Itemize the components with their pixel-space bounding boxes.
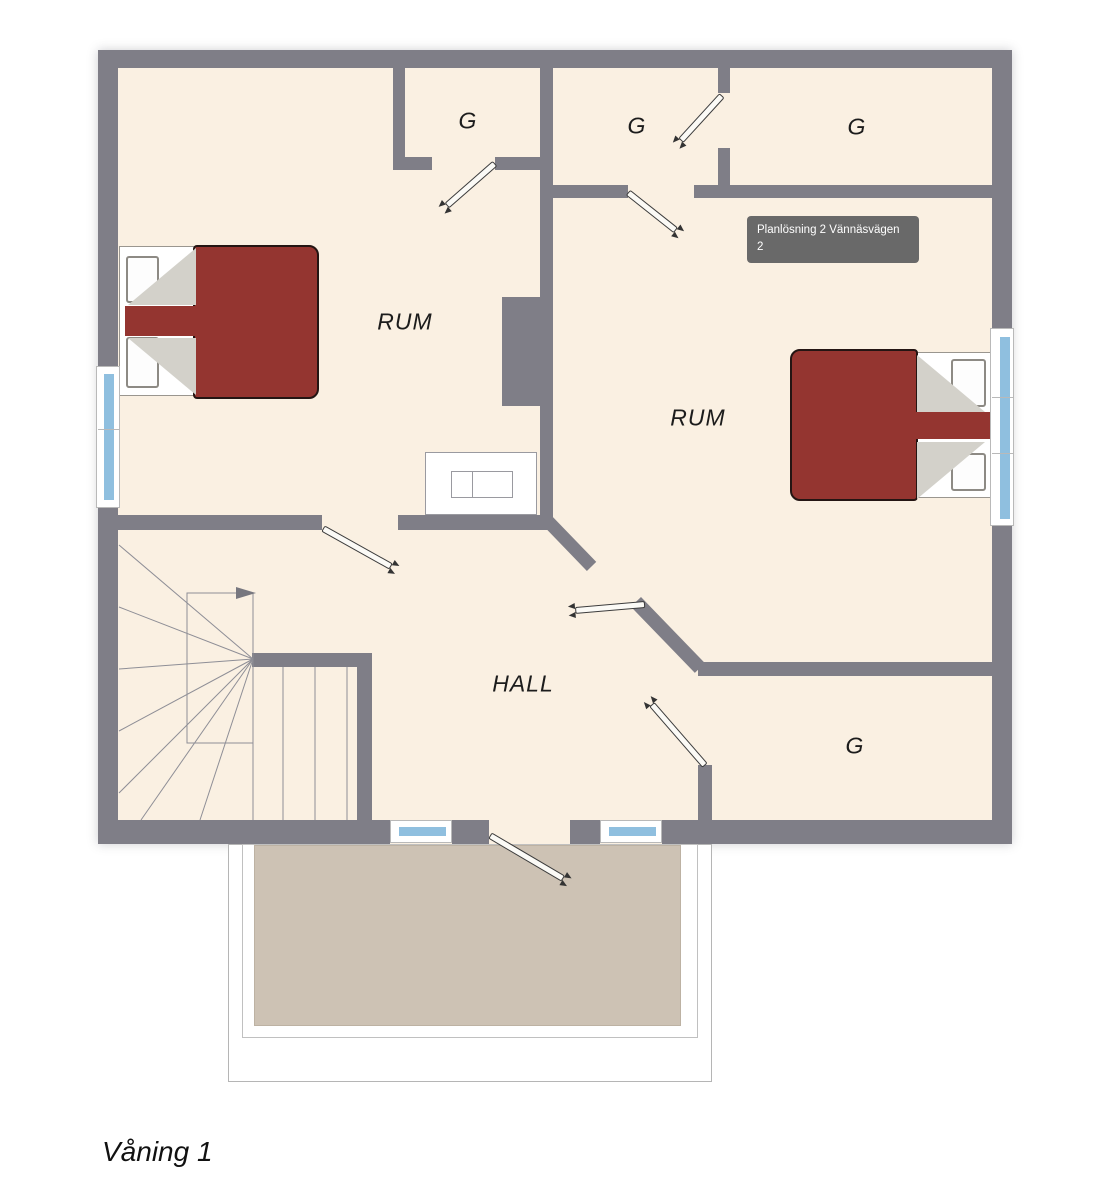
wall-stair-vertical	[357, 653, 372, 820]
floor-caption: Våning 1	[102, 1136, 213, 1168]
wall-outer-bottom-a	[98, 820, 390, 844]
bed-right-fold-top	[917, 355, 985, 412]
label-closet-top-mid: G	[628, 113, 647, 140]
wall-outer-left-lower	[98, 507, 118, 844]
fixture-inner	[451, 471, 513, 498]
floor-plan-viewer: G G G RUM RUM HALL G Planlösning 2 Vännä…	[0, 0, 1110, 1204]
plan-tooltip: Planlösning 2 Vännäsvägen 2	[747, 216, 919, 263]
wall-closet1-left	[393, 68, 405, 170]
wall-closet4-stub	[698, 765, 712, 820]
wall-stair-horizontal	[252, 653, 372, 667]
wall-outer-right-lower	[992, 525, 1012, 844]
window-bottom-left	[390, 820, 452, 843]
label-room-left: RUM	[377, 309, 432, 336]
wall-chimney-block	[502, 297, 553, 406]
wall-closet1-bottom-left	[393, 157, 432, 170]
label-closet-bottom-right: G	[846, 733, 865, 760]
wall-outer-bottom-b	[452, 820, 489, 844]
label-closet-top-right: G	[848, 114, 867, 141]
wall-outer-top	[98, 50, 1012, 68]
wall-hall-top-left	[98, 515, 322, 530]
fixture-divider	[472, 472, 473, 497]
window-bottom-right	[600, 820, 662, 843]
wall-closet1-bottom-right	[495, 157, 540, 170]
wall-closet3-bottom	[694, 185, 992, 198]
bed-left-duvet-strip	[125, 306, 197, 336]
bed-left-duvet	[193, 245, 319, 399]
bed-left-fold-top	[128, 248, 196, 305]
wall-closet2-bottom	[553, 185, 628, 198]
wall-outer-bottom-c	[570, 820, 600, 844]
bed-right-duvet-strip	[915, 412, 990, 439]
balcony-deck	[254, 845, 681, 1026]
window-left	[96, 366, 120, 508]
wall-hall-closet4	[698, 662, 992, 676]
label-hall: HALL	[492, 671, 554, 698]
wall-outer-right-upper	[992, 50, 1012, 330]
label-closet-top-left: G	[459, 108, 478, 135]
wall-outer-left-upper	[98, 50, 118, 368]
window-right	[990, 328, 1014, 526]
wall-outer-bottom-d	[662, 820, 1012, 844]
label-room-right: RUM	[670, 405, 725, 432]
wall-closet-partition-upper	[718, 68, 730, 93]
bed-right-fold-bottom	[917, 442, 985, 499]
bed-right-duvet	[790, 349, 918, 501]
wall-hall-top-right	[398, 515, 553, 530]
bed-left-fold-bottom	[128, 338, 196, 395]
fixture-box	[425, 452, 537, 515]
